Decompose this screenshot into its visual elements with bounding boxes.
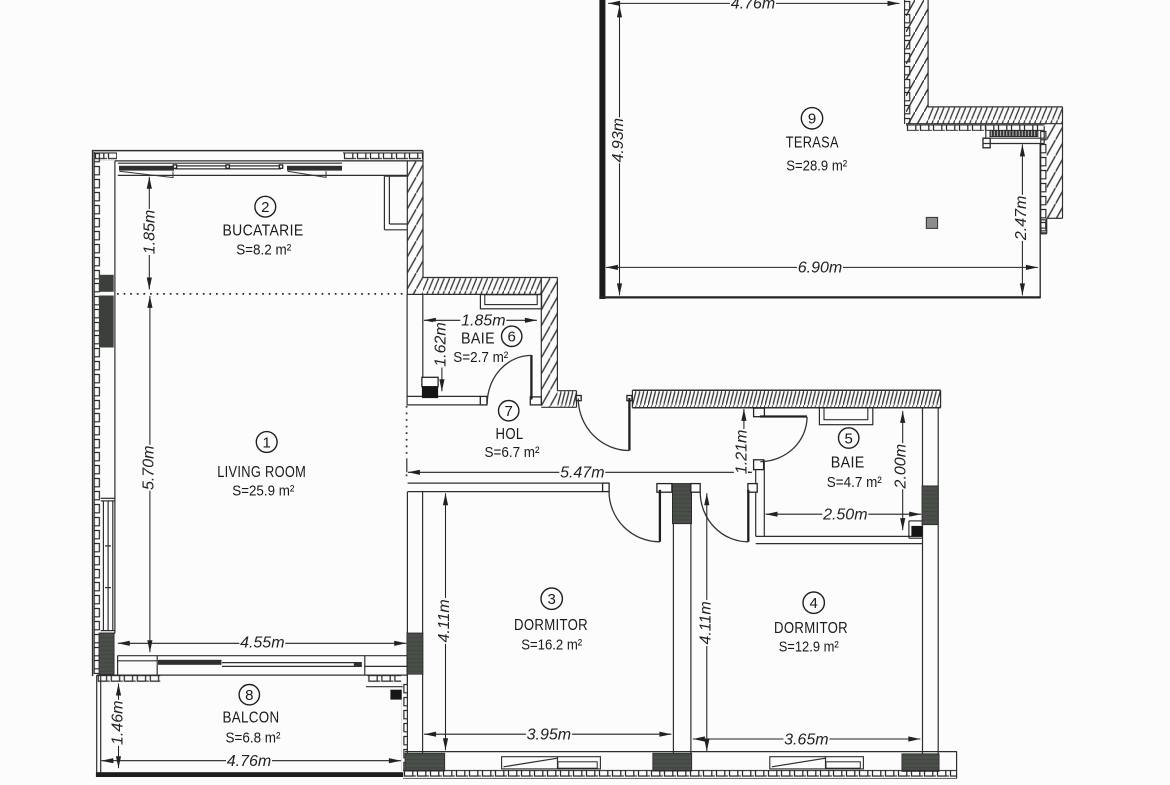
svg-text:S=6.8 m²: S=6.8 m² [226, 729, 281, 746]
svg-text:HOL: HOL [496, 426, 524, 443]
svg-text:S=25.9 m²: S=25.9 m² [232, 483, 294, 500]
svg-text:5: 5 [845, 430, 853, 447]
svg-text:S=28.9 m²: S=28.9 m² [786, 157, 847, 174]
svg-text:DORMITOR: DORMITOR [514, 617, 588, 634]
svg-text:4.93m: 4.93m [610, 118, 627, 162]
svg-text:S=2.7 m²: S=2.7 m² [453, 349, 508, 366]
svg-text:8: 8 [245, 687, 253, 704]
svg-text:2: 2 [261, 199, 269, 216]
svg-text:4.76m: 4.76m [227, 753, 271, 770]
svg-text:1.85m: 1.85m [142, 210, 159, 254]
svg-text:DORMITOR: DORMITOR [774, 620, 848, 637]
svg-text:1.21m: 1.21m [734, 430, 751, 474]
svg-text:1.62m: 1.62m [433, 322, 450, 366]
svg-text:S=4.7 m²: S=4.7 m² [827, 474, 882, 491]
svg-text:9: 9 [808, 111, 816, 128]
svg-text:1: 1 [263, 434, 271, 451]
svg-text:4.76m: 4.76m [731, 0, 775, 13]
svg-text:S=16.2 m²: S=16.2 m² [521, 636, 582, 653]
svg-text:BAIE: BAIE [461, 331, 495, 348]
svg-text:6.90m: 6.90m [798, 260, 842, 277]
svg-text:S=6.7 m²: S=6.7 m² [485, 444, 540, 461]
svg-text:BAIE: BAIE [831, 454, 865, 471]
svg-text:5.47m: 5.47m [560, 465, 604, 482]
svg-text:7: 7 [505, 403, 513, 420]
svg-text:3.65m: 3.65m [784, 731, 828, 748]
svg-text:1.85m: 1.85m [461, 313, 505, 330]
svg-text:BUCATARIE: BUCATARIE [223, 223, 304, 240]
svg-text:4.11m: 4.11m [698, 601, 715, 644]
svg-text:S=12.9 m²: S=12.9 m² [779, 638, 839, 655]
svg-text:6: 6 [508, 329, 516, 346]
svg-text:S=8.2 m²: S=8.2 m² [236, 242, 291, 259]
svg-text:BALCON: BALCON [223, 709, 280, 726]
svg-text:2.47m: 2.47m [1013, 196, 1030, 241]
svg-text:1.46m: 1.46m [109, 701, 126, 745]
svg-text:2.00m: 2.00m [893, 444, 910, 489]
svg-text:LIVING ROOM: LIVING ROOM [217, 464, 306, 481]
svg-text:4.55m: 4.55m [240, 635, 284, 652]
svg-text:4.11m: 4.11m [436, 599, 453, 642]
svg-text:2.50m: 2.50m [822, 507, 867, 524]
svg-text:4: 4 [810, 595, 818, 612]
svg-text:3.95m: 3.95m [527, 727, 571, 744]
svg-text:3: 3 [548, 591, 556, 608]
svg-text:5.70m: 5.70m [141, 446, 158, 490]
svg-text:TERASA: TERASA [786, 135, 839, 152]
